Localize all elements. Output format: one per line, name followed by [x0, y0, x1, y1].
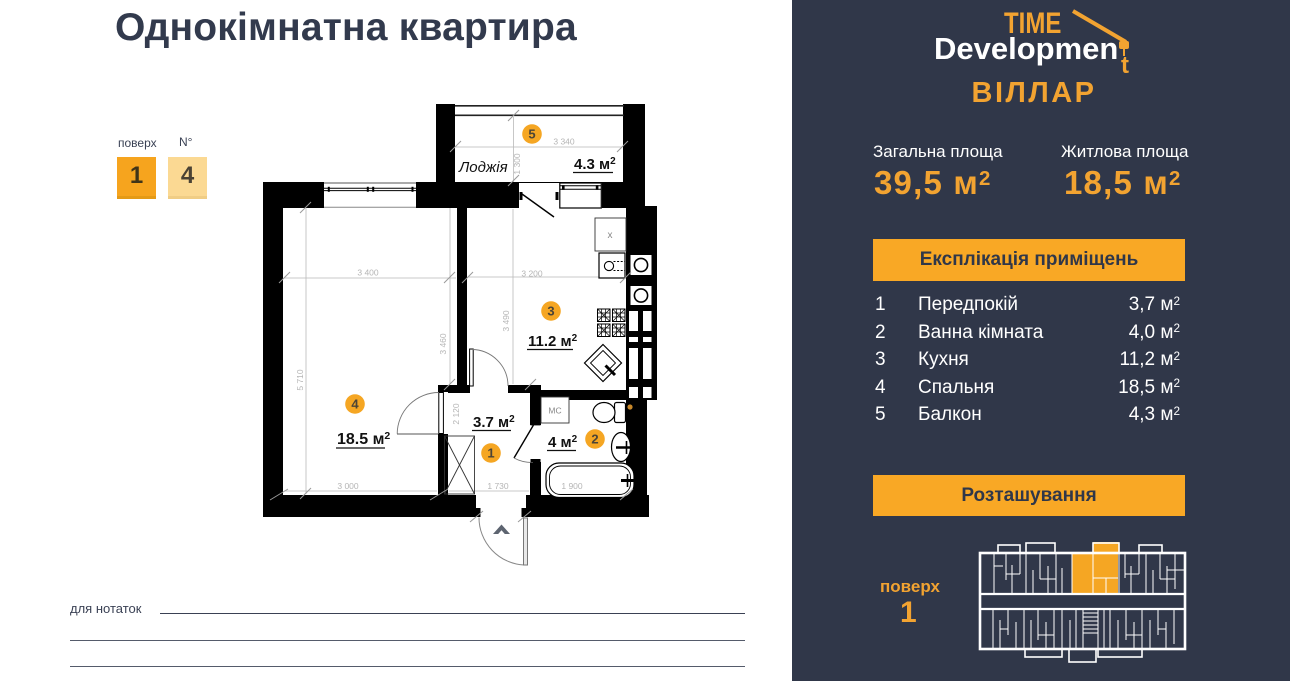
svg-text:МС: МС — [548, 406, 561, 416]
svg-text:3 490: 3 490 — [501, 310, 511, 332]
svg-text:11.2 м2: 11.2 м2 — [528, 333, 578, 350]
svg-text:3 400: 3 400 — [357, 268, 379, 278]
svg-text:Лоджія: Лоджія — [458, 159, 508, 176]
svg-text:2: 2 — [591, 432, 598, 447]
svg-text:4 м2: 4 м2 — [548, 434, 578, 451]
svg-text:2 120: 2 120 — [451, 403, 461, 425]
svg-text:5: 5 — [528, 127, 535, 142]
svg-text:1 900: 1 900 — [561, 481, 583, 491]
svg-text:18.5 м2: 18.5 м2 — [337, 430, 390, 448]
svg-text:3 340: 3 340 — [553, 137, 575, 147]
svg-text:5 710: 5 710 — [295, 369, 305, 391]
svg-text:3.7 м2: 3.7 м2 — [473, 414, 515, 431]
svg-text:x: x — [608, 230, 613, 241]
svg-text:3 000: 3 000 — [337, 481, 359, 491]
svg-text:3: 3 — [547, 304, 554, 319]
svg-text:1: 1 — [487, 446, 494, 461]
svg-text:4: 4 — [351, 397, 359, 412]
svg-text:3 200: 3 200 — [521, 269, 543, 279]
svg-text:1 730: 1 730 — [487, 481, 509, 491]
svg-text:3 460: 3 460 — [438, 333, 448, 355]
svg-text:4.3 м2: 4.3 м2 — [574, 156, 616, 173]
svg-text:1 300: 1 300 — [512, 153, 522, 175]
